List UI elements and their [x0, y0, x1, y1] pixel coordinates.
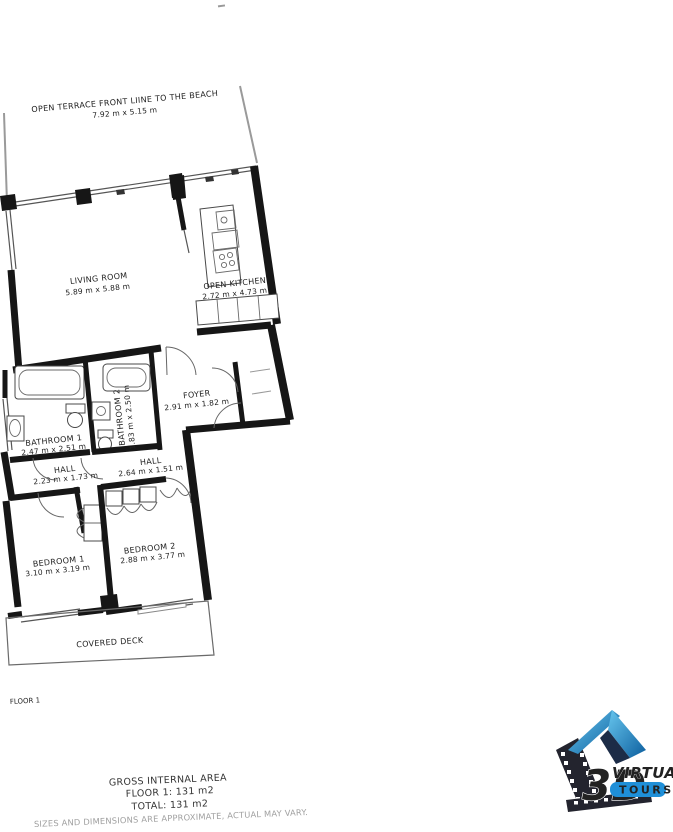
logo-tours-text: TOURS — [619, 784, 673, 797]
floor-label: FLOOR 1 — [10, 696, 41, 706]
foyer-dims: 2.91 m x 1.82 m — [164, 397, 230, 413]
hall2-dims: 2.64 m x 1.51 m — [118, 463, 184, 479]
kitchen-island — [200, 205, 241, 287]
logo-virtual-text: VIRTUAL — [612, 764, 673, 782]
foyer-walls — [166, 325, 290, 430]
logo-3d-virtual-tours: 3D VIRTUAL TOURS — [556, 710, 673, 812]
covered-deck-label: COVERED DECK — [76, 636, 144, 650]
summary-total: TOTAL: 131 m2 — [130, 798, 208, 812]
terrace-window-wall — [2, 166, 256, 208]
summary-block: GROSS INTERNAL AREA FLOOR 1: 131 m2 TOTA… — [34, 772, 308, 829]
halls — [10, 487, 102, 541]
floorplan-page: OPEN TERRACE FRONT LIINE TO THE BEACH 7.… — [0, 0, 673, 832]
scan-artifact — [218, 4, 225, 7]
living-room-walls — [0, 173, 189, 371]
hall1-dims: 2.23 m x 1.73 m — [33, 471, 99, 487]
floorplan-drawing: OPEN TERRACE FRONT LIINE TO THE BEACH 7.… — [0, 0, 673, 832]
